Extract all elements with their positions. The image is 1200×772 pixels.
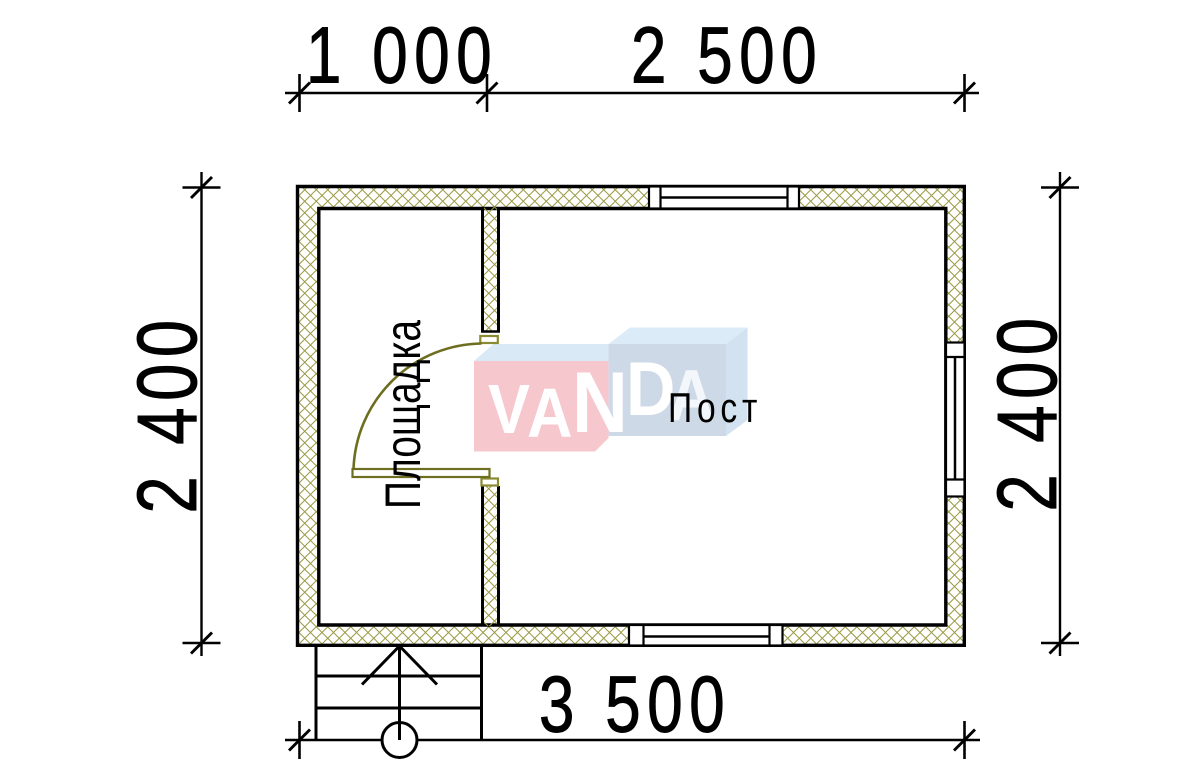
svg-text:N: N — [572, 355, 628, 451]
svg-text:Площадка: Площадка — [374, 320, 431, 509]
svg-text:2 400: 2 400 — [121, 313, 215, 513]
svg-text:1 000: 1 000 — [306, 11, 498, 100]
svg-text:2 400: 2 400 — [981, 311, 1075, 511]
svg-text:A: A — [527, 375, 572, 453]
svg-text:Пост: Пост — [668, 386, 762, 432]
svg-text:2 500: 2 500 — [631, 11, 823, 100]
svg-text:V: V — [488, 371, 530, 449]
svg-text:3 500: 3 500 — [539, 660, 731, 749]
